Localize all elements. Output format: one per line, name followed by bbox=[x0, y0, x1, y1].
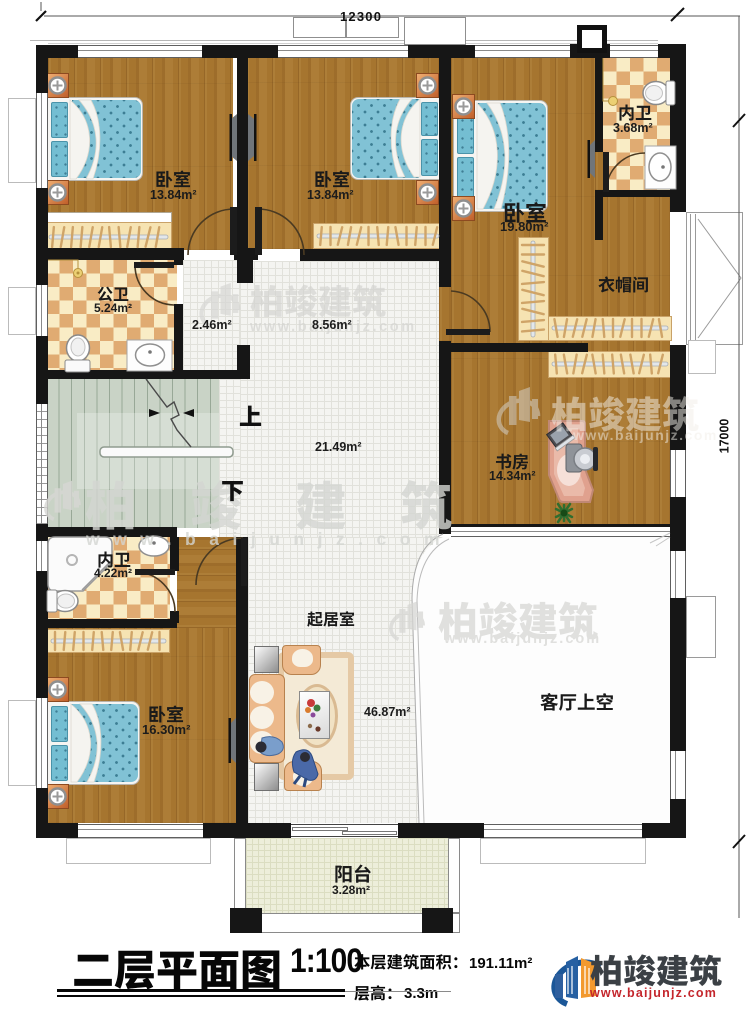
svg-text:www.baijunjz.com: www.baijunjz.com bbox=[85, 529, 453, 549]
svg-text:www.baijunjz.com: www.baijunjz.com bbox=[572, 427, 718, 443]
svg-text:www.baijunjz.com: www.baijunjz.com bbox=[443, 631, 601, 647]
